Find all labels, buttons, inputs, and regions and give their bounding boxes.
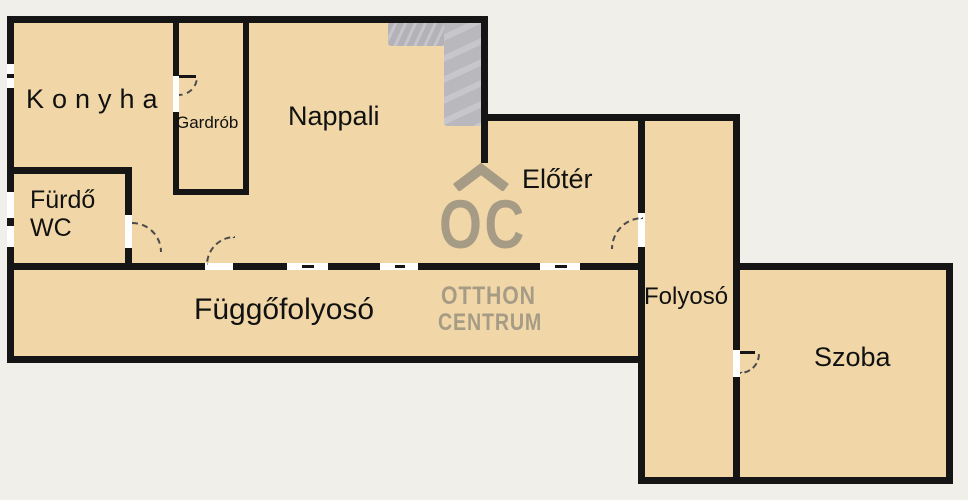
window-mullion bbox=[395, 265, 405, 268]
wall-gardrob-right bbox=[243, 16, 249, 195]
window-mullion bbox=[555, 265, 567, 268]
wall-eloter-top bbox=[481, 114, 740, 121]
watermark-line2: CENTRUM bbox=[438, 309, 542, 337]
wall-szoba-top bbox=[733, 263, 953, 270]
wall-szoba-right bbox=[946, 263, 953, 484]
room-label-konyha: Konyha bbox=[26, 84, 166, 115]
room-label-eloter: Előtér bbox=[522, 164, 593, 195]
window-mullion bbox=[7, 74, 14, 78]
room-label-fuggofolyoso: Függőfolyosó bbox=[194, 293, 374, 327]
room-label-szoba: Szoba bbox=[814, 342, 891, 373]
door-opening-furdo bbox=[125, 215, 132, 248]
wall-bottom-right bbox=[638, 477, 953, 484]
wall-gardrob-bottom bbox=[173, 189, 249, 195]
room-label-nappali: Nappali bbox=[288, 101, 380, 132]
staircase-lower-run bbox=[444, 20, 481, 126]
window-mullion bbox=[302, 265, 314, 268]
room-label-furdo-wc: Fürdő WC bbox=[30, 186, 95, 242]
wall-folyoso-right bbox=[733, 114, 740, 484]
oc-logo-text: OC bbox=[439, 189, 527, 261]
wall-nappali-right bbox=[481, 16, 488, 163]
room-label-gardrob: Gardrób bbox=[176, 113, 238, 133]
wall-furdo-top bbox=[7, 167, 132, 174]
floor-plan: OC OTTHON CENTRUM Konyha Gardrób Nappali bbox=[0, 0, 968, 500]
wall-fuggofolyoso-bottom bbox=[7, 356, 645, 363]
staircase-upper-run bbox=[388, 22, 445, 46]
watermark-line1: OTTHON bbox=[441, 282, 536, 311]
room-label-folyoso: Folyosó bbox=[644, 283, 728, 311]
door-opening-szoba bbox=[733, 350, 740, 377]
floor-szoba bbox=[733, 263, 953, 484]
room-label-furdo-line1: Fürdő bbox=[30, 186, 95, 214]
window-mullion bbox=[7, 218, 14, 226]
room-label-furdo-line2: WC bbox=[30, 214, 72, 242]
